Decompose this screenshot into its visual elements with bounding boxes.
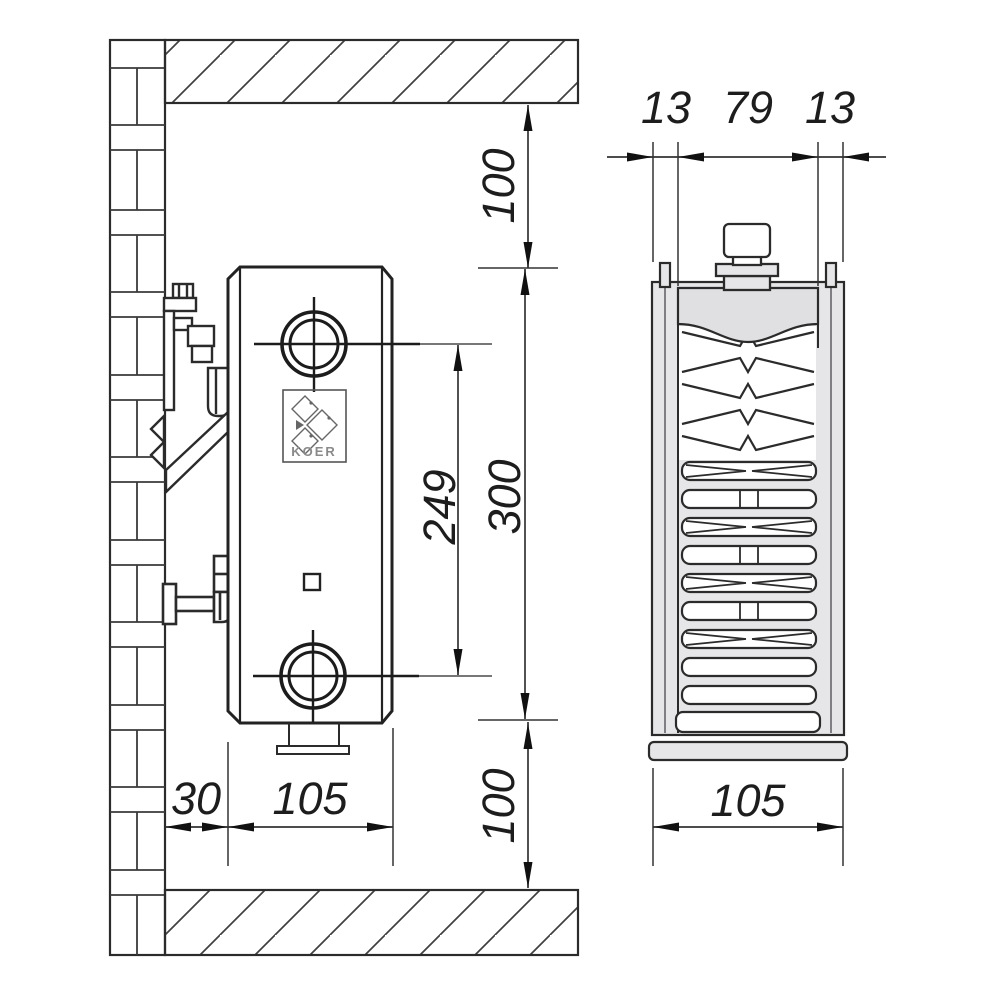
arrowhead bbox=[524, 862, 533, 888]
valve-cap bbox=[724, 224, 770, 257]
bracket-rod bbox=[176, 597, 214, 611]
brick-wall bbox=[110, 40, 165, 955]
upper-wall-bracket bbox=[151, 284, 230, 492]
bracket-nut bbox=[188, 326, 214, 346]
bracket-plate bbox=[164, 311, 174, 410]
anchor-plate bbox=[164, 298, 196, 311]
bottom-slot bbox=[676, 712, 820, 732]
dim-label-pipe-spacing: 249 bbox=[414, 469, 465, 545]
arrowhead bbox=[524, 242, 533, 268]
valve-neck bbox=[724, 276, 770, 290]
dim-label-height: 300 bbox=[479, 459, 530, 534]
arrowhead bbox=[817, 823, 843, 832]
arrowhead bbox=[228, 823, 254, 832]
floor-hatch bbox=[165, 890, 578, 955]
radiator-foot bbox=[277, 723, 349, 754]
section-view bbox=[649, 224, 847, 760]
dim-bottom-clearance bbox=[524, 722, 533, 888]
anchor-bolt-head bbox=[173, 284, 193, 298]
base-plate bbox=[649, 742, 847, 760]
drawing-canvas: KOER bbox=[0, 0, 1000, 1000]
convector-fins bbox=[679, 326, 816, 460]
arrowhead bbox=[521, 693, 530, 719]
arrowhead bbox=[454, 649, 463, 675]
arrowhead bbox=[627, 153, 653, 162]
arrowhead bbox=[367, 823, 393, 832]
dim-label-bottom-clearance: 100 bbox=[473, 768, 524, 843]
bracket-knob bbox=[163, 584, 176, 624]
logo-text: KOER bbox=[291, 444, 337, 459]
arrowhead bbox=[653, 823, 679, 832]
dim-label-section-depth: 105 bbox=[710, 775, 786, 826]
radiator-body bbox=[228, 267, 392, 754]
dim-label-depth: 105 bbox=[272, 773, 348, 824]
arrowhead bbox=[454, 345, 463, 371]
lower-wall-bracket bbox=[163, 556, 230, 624]
dim-label-wall-offset: 30 bbox=[171, 773, 221, 824]
arrowhead bbox=[792, 153, 818, 162]
radiator-installation-drawing: KOER bbox=[0, 0, 1000, 1000]
bleed-valve bbox=[716, 224, 778, 290]
radiator-silhouette bbox=[228, 267, 392, 723]
arrowhead bbox=[524, 723, 533, 749]
mount-tab-left bbox=[660, 263, 670, 287]
ceiling-hatch bbox=[165, 40, 578, 103]
dim-label-core-width: 79 bbox=[723, 82, 773, 133]
dim-label-back-panel: 13 bbox=[805, 82, 855, 133]
arrowhead bbox=[524, 105, 533, 131]
mount-tab-right bbox=[826, 263, 836, 287]
bracket-brace bbox=[166, 412, 228, 492]
arrowhead bbox=[521, 269, 530, 295]
dim-label-front-panel: 13 bbox=[641, 82, 691, 133]
dim-label-top-clearance: 100 bbox=[473, 148, 524, 223]
arrowhead bbox=[843, 153, 869, 162]
arrowhead bbox=[678, 153, 704, 162]
